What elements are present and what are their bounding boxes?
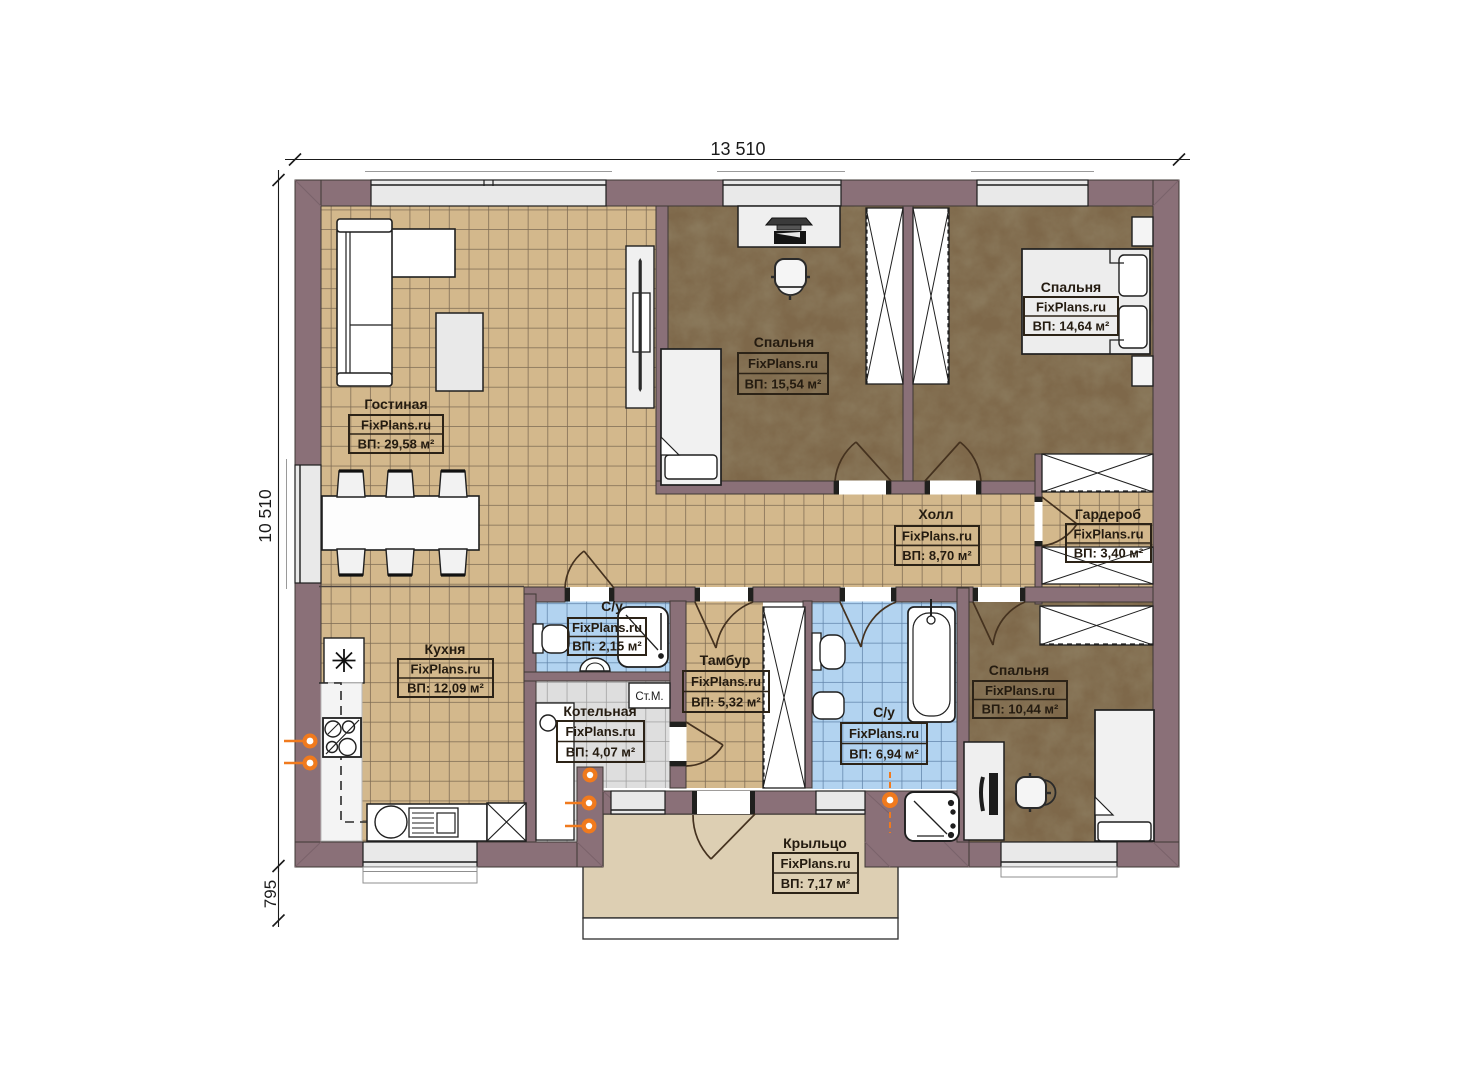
svg-text:ВП: 12,09 м²: ВП: 12,09 м² <box>407 680 484 695</box>
svg-text:ВП: 7,17 м²: ВП: 7,17 м² <box>781 876 851 891</box>
svg-text:ВП: 10,44 м²: ВП: 10,44 м² <box>982 702 1059 717</box>
svg-text:FixPlans.ru: FixPlans.ru <box>691 674 761 689</box>
svg-text:13 510: 13 510 <box>710 139 765 159</box>
svg-text:ВП: 6,94 м²: ВП: 6,94 м² <box>849 747 919 762</box>
svg-text:ВП: 14,64 м²: ВП: 14,64 м² <box>1033 318 1110 333</box>
svg-text:FixPlans.ru: FixPlans.ru <box>572 620 642 635</box>
svg-text:Кухня: Кухня <box>425 641 466 657</box>
svg-text:FixPlans.ru: FixPlans.ru <box>565 724 635 739</box>
svg-text:Спальня: Спальня <box>989 662 1049 678</box>
svg-text:FixPlans.ru: FixPlans.ru <box>1073 526 1143 541</box>
svg-text:ВП: 29,58 м²: ВП: 29,58 м² <box>358 436 435 451</box>
svg-text:С/у: С/у <box>873 704 895 720</box>
svg-text:ВП: 8,70 м²: ВП: 8,70 м² <box>902 548 972 563</box>
svg-text:FixPlans.ru: FixPlans.ru <box>410 661 480 676</box>
svg-text:С/у: С/у <box>601 598 623 614</box>
svg-text:FixPlans.ru: FixPlans.ru <box>849 726 919 741</box>
svg-text:Спальня: Спальня <box>1041 279 1101 295</box>
svg-text:10 510: 10 510 <box>255 489 275 543</box>
svg-text:ВП: 15,54 м²: ВП: 15,54 м² <box>745 377 822 392</box>
svg-text:ВП: 2,15 м²: ВП: 2,15 м² <box>572 639 642 654</box>
svg-text:Тамбур: Тамбур <box>700 652 751 668</box>
svg-text:FixPlans.ru: FixPlans.ru <box>361 417 431 432</box>
svg-text:FixPlans.ru: FixPlans.ru <box>748 356 818 371</box>
svg-text:FixPlans.ru: FixPlans.ru <box>1036 299 1106 314</box>
svg-text:FixPlans.ru: FixPlans.ru <box>902 529 972 544</box>
svg-text:ВП: 4,07 м²: ВП: 4,07 м² <box>566 745 636 760</box>
svg-text:ВП: 3,40 м²: ВП: 3,40 м² <box>1074 545 1144 560</box>
svg-text:Ст.М.: Ст.М. <box>635 691 663 703</box>
svg-text:Крыльцо: Крыльцо <box>783 835 847 851</box>
svg-text:Спальня: Спальня <box>754 334 814 350</box>
svg-text:Гостиная: Гостиная <box>364 396 427 412</box>
svg-text:FixPlans.ru: FixPlans.ru <box>780 856 850 871</box>
svg-text:ВП: 5,32 м²: ВП: 5,32 м² <box>691 695 761 710</box>
svg-text:795: 795 <box>261 880 280 908</box>
svg-text:Гардероб: Гардероб <box>1075 506 1142 522</box>
svg-text:FixPlans.ru: FixPlans.ru <box>985 683 1055 698</box>
svg-text:Холл: Холл <box>918 506 953 522</box>
svg-text:Котельная: Котельная <box>563 703 636 719</box>
